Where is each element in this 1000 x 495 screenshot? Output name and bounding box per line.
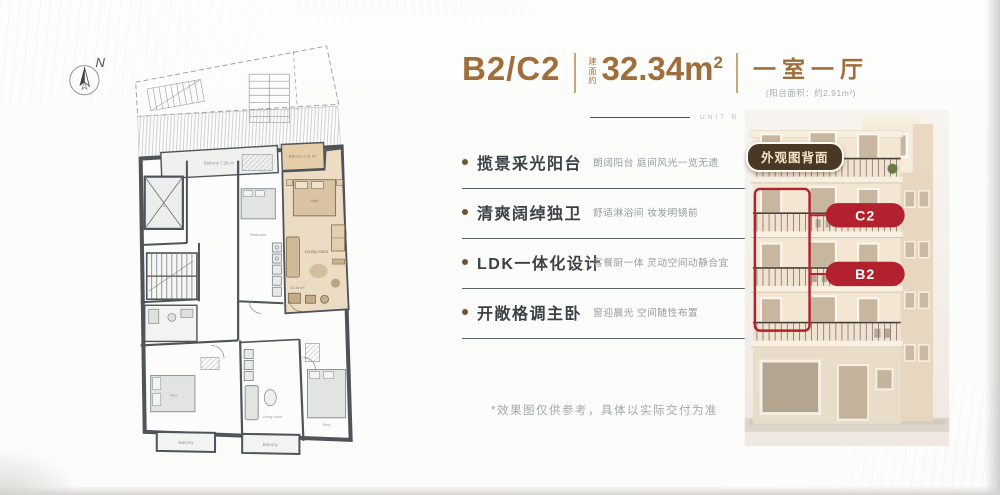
bullet-icon [462, 159, 468, 165]
bullet-icon [462, 259, 468, 265]
plant [331, 279, 340, 288]
floorplan-svg: N [34, 38, 384, 464]
balcony-unit-label: Balcony 2.91 m² [289, 155, 317, 159]
brochure-page: N [0, 0, 1000, 495]
highlighted-unit: Bed Living room 32.34 m² [282, 149, 348, 314]
sofa [286, 237, 299, 277]
living-room-label: Living room [262, 415, 282, 419]
area-superscript: 2 [713, 53, 722, 72]
feature-item: LDK一体化设计 客餐厨一体 灵动空间动静合宜 [462, 239, 748, 289]
feature-list: 揽景采光阳台 朗阔阳台 庭间风光一览无遗 清爽阔绰独卫 舒适淋浴间 妆发明镜前 … [462, 139, 748, 339]
bedroom-label: Bedroom [250, 232, 267, 237]
page-edge-bottom [0, 486, 1000, 495]
feature-title: 清爽阔绰独卫 [477, 200, 593, 224]
feature-item: 清爽阔绰独卫 舒适淋浴间 妆发明镜前 [462, 189, 748, 239]
photo-tag: 外观图背面 [746, 142, 844, 172]
bath-rooms [145, 305, 197, 341]
rug [309, 264, 327, 278]
divider-line [590, 117, 690, 118]
feature-desc: 窗迎晨光 空间随性布置 [593, 305, 698, 319]
divider-vertical [574, 53, 576, 93]
feature-item: 揽景采光阳台 朗阔阳台 庭间风光一览无遗 [462, 139, 748, 189]
page-edge-right [985, 0, 1000, 495]
floorplan: N [34, 38, 384, 464]
feature-desc: 舒适淋浴间 妆发明镜前 [593, 205, 698, 219]
stairwell [147, 253, 197, 299]
bed-label: Bed [323, 422, 330, 427]
plant [887, 164, 897, 174]
bed-label: Bed [170, 393, 177, 398]
north-compass-icon: N [70, 55, 106, 95]
feature-desc: 客餐厨一体 灵动空间动静合宜 [593, 255, 729, 269]
feature-title: LDK一体化设计 [477, 250, 593, 274]
balcony-label: Balcony [263, 442, 279, 447]
living-room-label: Living room [305, 249, 329, 254]
balcony-note: (阳台面积：约2.91m²) [753, 87, 869, 99]
unit-area-label: 32.34 m² [290, 286, 305, 290]
bullet-icon [462, 209, 468, 215]
right-wing [899, 169, 933, 422]
balcony-top-label: Balcony 7.28 m² [204, 161, 235, 166]
balcony-label: Balcony [178, 440, 194, 445]
unit-pill-c2-label: C2 [855, 208, 875, 224]
texture-top-center [298, 0, 533, 38]
feature-desc: 朗阔阳台 庭间风光一览无遗 [593, 155, 718, 169]
exterior-photo: 外观图背面 [744, 110, 950, 446]
feature-title: 揽景采光阳台 [477, 150, 593, 174]
area-value: 32.34m2 [602, 50, 723, 88]
ground-floor [753, 347, 901, 424]
area-number: 32.34m [602, 50, 714, 87]
feature-title: 开敞格调主卧 [477, 300, 593, 324]
disclaimer-text: *效果图仅供参考，具体以实际交付为准 [491, 402, 718, 418]
unit-code: B2/C2 [462, 50, 561, 88]
feature-item: 开敞格调主卧 窗迎晨光 空间随性布置 [462, 289, 748, 339]
bullet-icon [462, 309, 468, 315]
divider-vertical [736, 53, 738, 93]
elevator: Lift [145, 177, 183, 229]
bed-label: Bed [311, 198, 318, 203]
layout-type: 一室一厅 [753, 53, 869, 85]
north-label: N [95, 55, 105, 70]
unit-pill-b2-label: B2 [855, 267, 875, 283]
area-prefix: 建面约 [589, 57, 599, 86]
